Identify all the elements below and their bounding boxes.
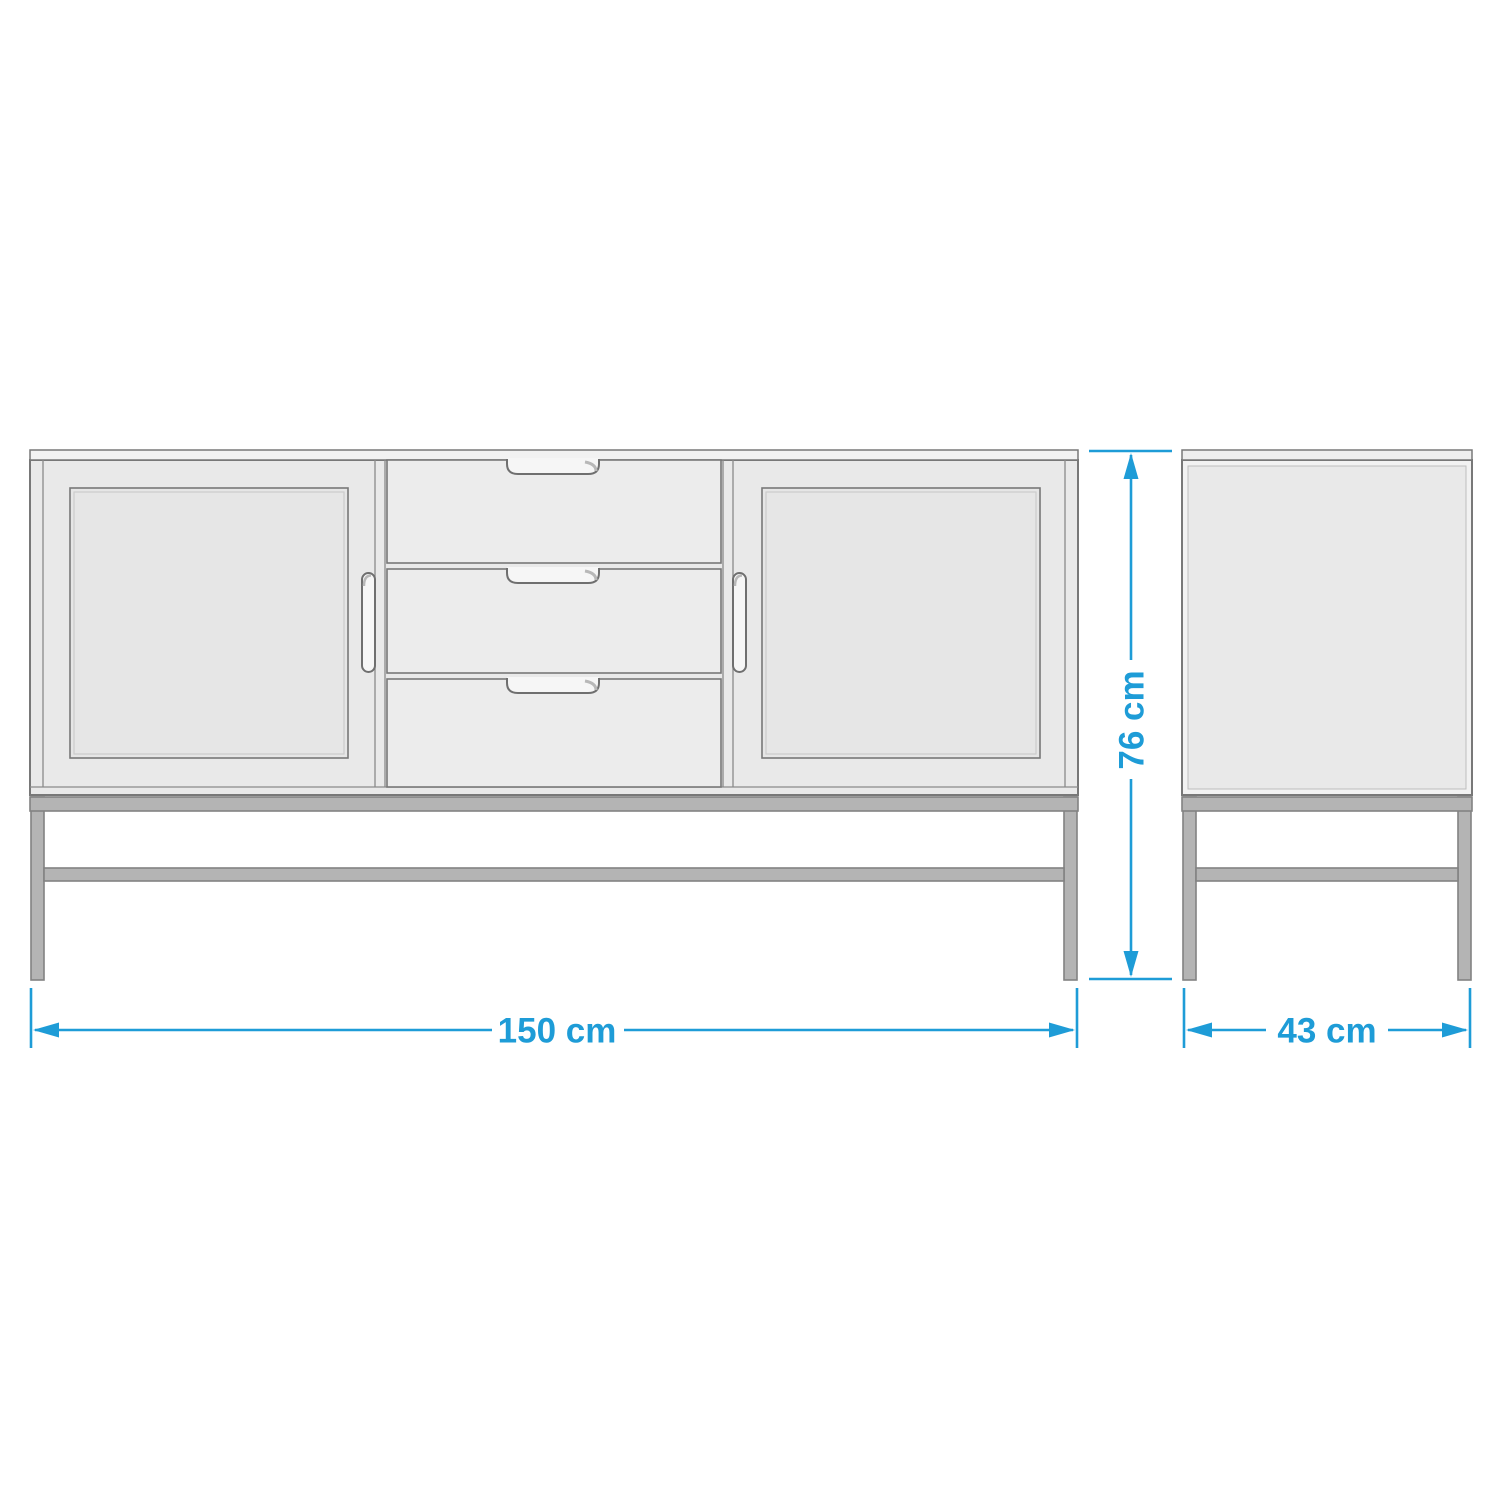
left-door	[70, 488, 375, 758]
front-base-left-leg	[31, 797, 44, 980]
side-base-top-rail	[1182, 797, 1472, 811]
depth-arrowhead-right	[1442, 1023, 1468, 1038]
side-top-board	[1182, 450, 1472, 460]
drawer-1-face	[387, 460, 721, 563]
front-base-top-rail	[30, 797, 1078, 811]
drawer-3-face	[387, 679, 721, 787]
side-base-frame	[1182, 797, 1472, 980]
right-door-handle	[733, 573, 746, 672]
side-base-stretcher	[1196, 868, 1458, 881]
right-door	[733, 488, 1040, 758]
furniture-dimension-diagram: 150 cm 76 cm 43 cm	[0, 0, 1500, 1500]
height-arrowhead-top	[1124, 453, 1139, 479]
width-dimension-label: 150 cm	[498, 1012, 617, 1051]
front-base-stretcher	[44, 868, 1064, 881]
drawer-bank	[387, 458, 721, 787]
width-dimension: 150 cm	[31, 988, 1077, 1051]
side-view	[1182, 450, 1472, 980]
width-arrowhead-right	[1049, 1023, 1075, 1038]
drawer-2-face	[387, 569, 721, 673]
depth-arrowhead-left	[1186, 1023, 1212, 1038]
depth-dimension-label: 43 cm	[1277, 1012, 1376, 1051]
side-base-left-leg	[1183, 797, 1196, 980]
side-base-right-leg	[1458, 797, 1471, 980]
left-door-handle	[362, 573, 375, 672]
drawer-3-handle-cutout-fill	[507, 677, 599, 694]
height-dimension: 76 cm	[1089, 451, 1172, 979]
front-base-frame	[30, 797, 1078, 980]
left-door-panel	[70, 488, 348, 758]
front-base-right-leg	[1064, 797, 1077, 980]
width-arrowhead-left	[33, 1023, 59, 1038]
drawer-2-handle-cutout-fill	[507, 567, 599, 584]
drawer-1-handle-cutout-fill	[507, 458, 599, 475]
right-door-panel	[762, 488, 1040, 758]
height-arrowhead-bottom	[1124, 951, 1139, 977]
height-dimension-label: 76 cm	[1113, 670, 1152, 769]
side-panel-field	[1188, 466, 1466, 789]
depth-dimension: 43 cm	[1184, 988, 1470, 1051]
front-view	[30, 450, 1078, 980]
